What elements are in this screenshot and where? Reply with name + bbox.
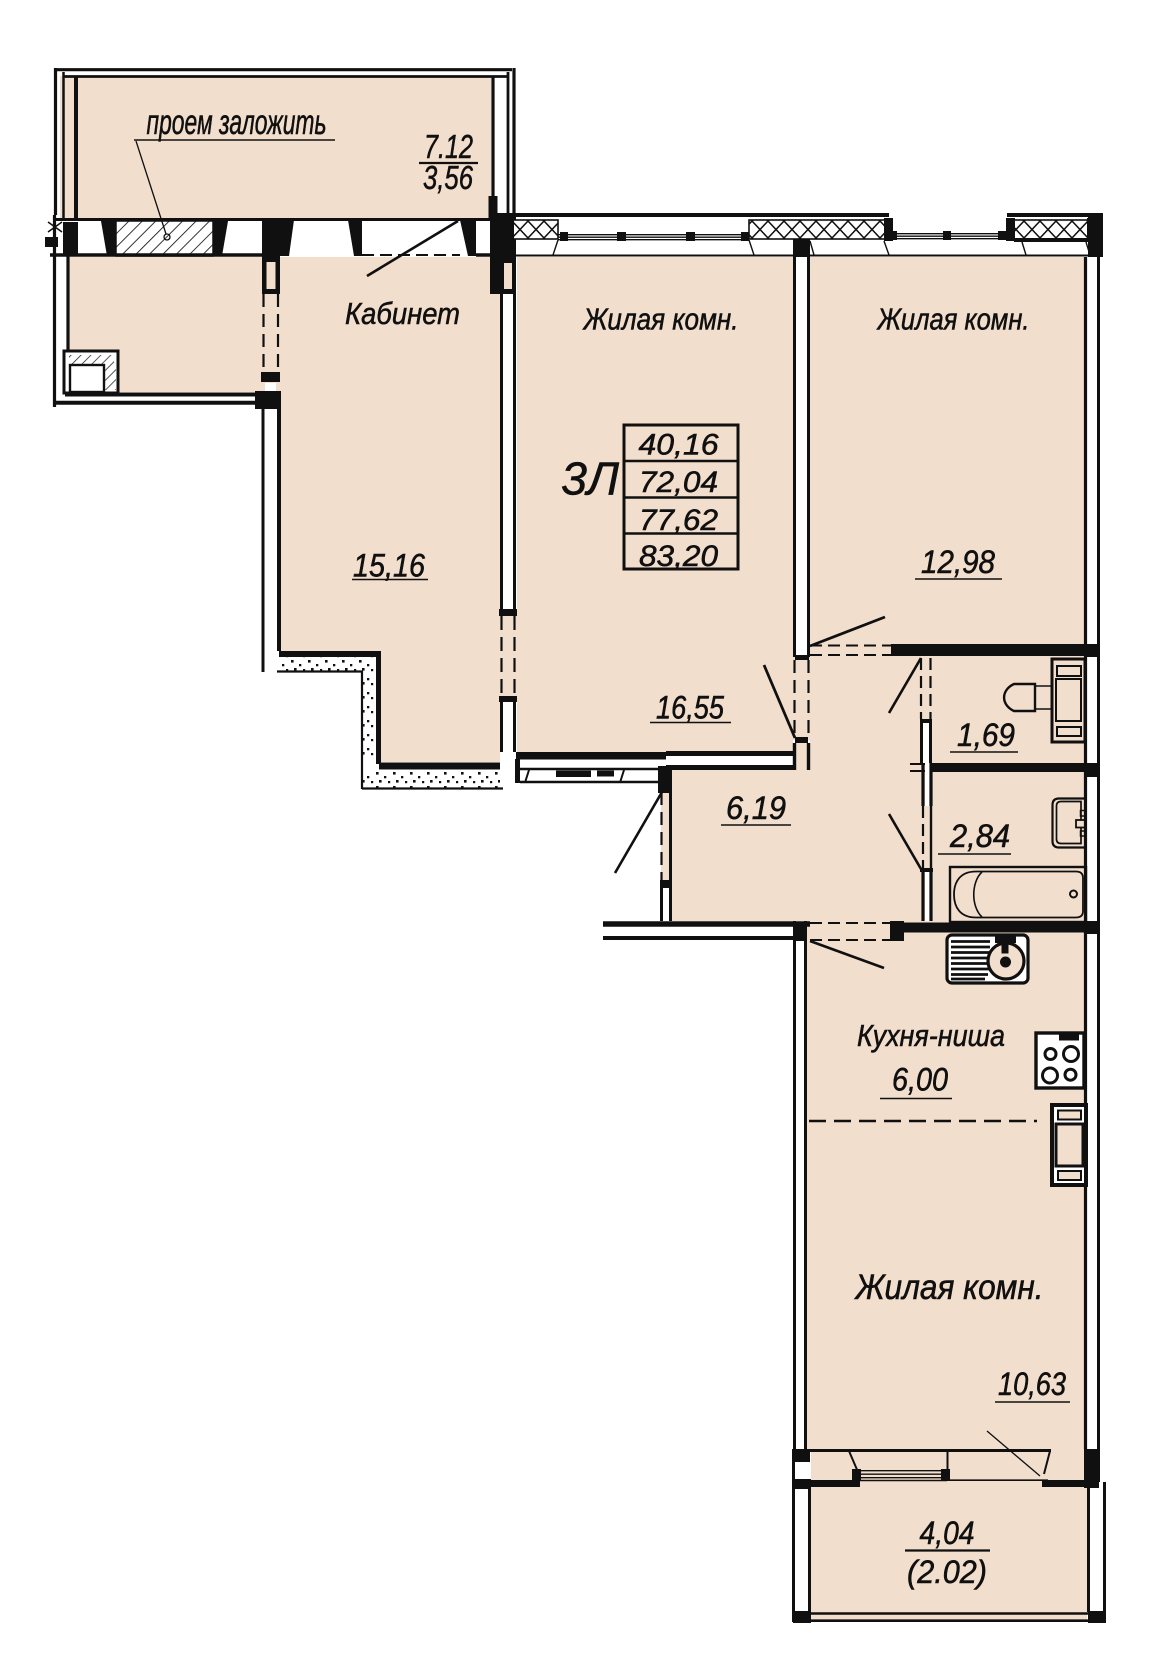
svg-text:Жилая комн.: Жилая комн. bbox=[582, 302, 739, 337]
svg-text:6,19: 6,19 bbox=[726, 790, 786, 826]
svg-text:2,84: 2,84 bbox=[949, 818, 1010, 854]
svg-text:77,62: 77,62 bbox=[639, 504, 718, 537]
svg-text:4,04: 4,04 bbox=[920, 1515, 975, 1551]
svg-text:1,69: 1,69 bbox=[957, 717, 1015, 753]
svg-text:16,55: 16,55 bbox=[656, 690, 724, 726]
svg-text:Жилая комн.: Жилая комн. bbox=[854, 1268, 1044, 1307]
svg-text:40,16: 40,16 bbox=[639, 429, 719, 462]
svg-text:15,16: 15,16 bbox=[353, 548, 425, 584]
svg-text:72,04: 72,04 bbox=[639, 466, 718, 499]
svg-text:(2.02): (2.02) bbox=[907, 1554, 987, 1590]
svg-text:6,00: 6,00 bbox=[892, 1062, 948, 1098]
svg-text:10,63: 10,63 bbox=[998, 1366, 1066, 1402]
svg-text:12,98: 12,98 bbox=[921, 544, 995, 580]
svg-text:Кухня-ниша: Кухня-ниша bbox=[857, 1018, 1005, 1053]
svg-text:83,20: 83,20 bbox=[639, 540, 718, 573]
svg-text:3Л: 3Л bbox=[561, 453, 619, 505]
svg-text:Кабинет: Кабинет bbox=[345, 296, 460, 331]
svg-text:3,56: 3,56 bbox=[423, 159, 473, 196]
svg-text:Жилая комн.: Жилая комн. bbox=[876, 302, 1030, 337]
svg-text:проем заложить: проем заложить bbox=[147, 103, 327, 142]
